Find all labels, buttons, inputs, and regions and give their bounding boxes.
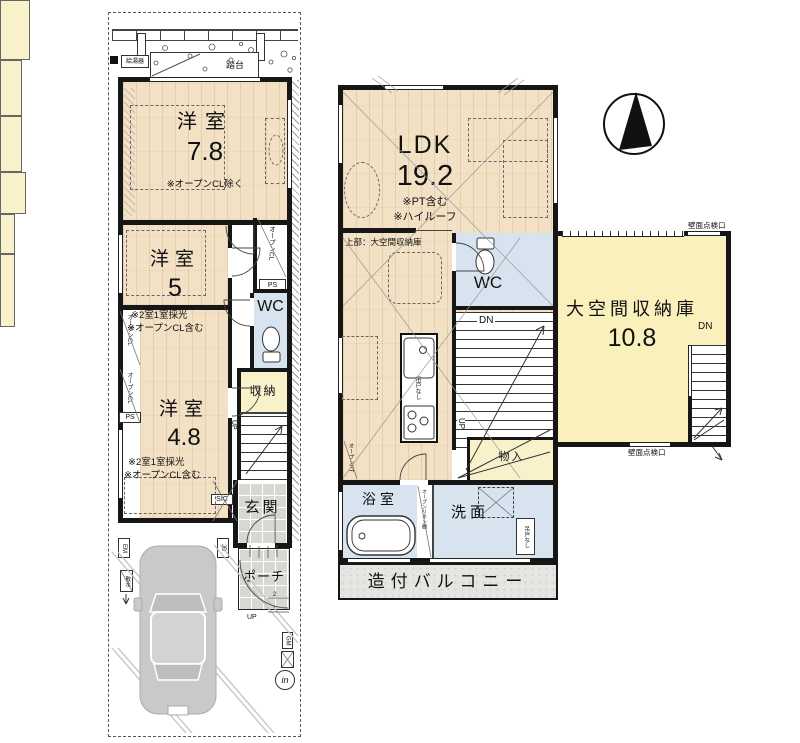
north-arrow-icon (598, 86, 670, 158)
wall (118, 518, 237, 523)
wc-room-2f (456, 233, 553, 306)
em-label: EM (121, 544, 127, 553)
room-78-note: ※オープンCL除く (140, 180, 270, 190)
ldk-area: 19.2 (370, 162, 480, 191)
room-48-note2: ※オープンCL含む (124, 471, 201, 481)
porch-step-1: 1 (273, 606, 277, 613)
window (118, 430, 123, 498)
in-label: in (281, 676, 288, 685)
porch-step-2: 2 (273, 592, 277, 599)
partition (416, 230, 452, 231)
jb-box: JB (217, 538, 229, 558)
staircase-2f (456, 312, 553, 452)
ps-label: PS (268, 282, 277, 289)
entrance-label: 玄関 (238, 500, 287, 515)
gm-label: GM (285, 636, 291, 646)
staircase-loft (692, 345, 726, 442)
room-78-area: 7.8 (158, 138, 252, 164)
dn-label-2f: DN (477, 316, 495, 326)
linen-shelf (0, 254, 15, 327)
in-marker: in (275, 670, 295, 690)
open-pantry-label: オープンPT (347, 443, 353, 472)
up-label-1f: UP (230, 420, 237, 430)
door-gap (228, 248, 232, 278)
wall (253, 218, 257, 290)
sic-label: SIC (216, 496, 228, 503)
room-48-name: 洋室 (142, 400, 226, 419)
wall (467, 437, 553, 440)
furniture-outline (388, 252, 442, 304)
cabinet-note: 吊戸なし (523, 526, 529, 548)
floorplan-canvas: 給湯器 踏台 PS オープンCL WC 収納 UP オープンCL オープンCL … (0, 0, 800, 743)
utility-square (110, 56, 118, 64)
step-platform-label: 踏台 (226, 61, 244, 70)
open-closet-label: オープンCL (267, 226, 274, 260)
loft-name: 大空間収納庫 (562, 300, 702, 318)
open-closet (0, 0, 30, 60)
porch-label: ポーチ (238, 570, 290, 583)
ps-label: PS (125, 414, 134, 421)
wc-label-1f: WC (255, 299, 286, 315)
door-gap (452, 243, 456, 271)
room-48-note1: ※2室1室採光 (128, 458, 185, 468)
window (338, 338, 343, 393)
wall (456, 306, 553, 310)
wc-label-2f: WC (468, 274, 508, 291)
bathroom-label: 浴室 (345, 492, 415, 506)
open-closet (0, 116, 22, 172)
room-48-area: 4.8 (142, 426, 226, 450)
linen-shelf-label: オープンリネン棚 (421, 489, 426, 529)
room-78-name: 洋室 (158, 112, 252, 132)
inspection-hatch (630, 442, 670, 447)
furniture-outline (265, 118, 285, 184)
step-platform: 踏台 (150, 52, 259, 78)
loft-area: 10.8 (572, 326, 692, 351)
wall (338, 228, 416, 233)
jb-label: JB (220, 544, 226, 551)
furniture-outline (342, 336, 378, 400)
storage-label-1f: 収納 (240, 385, 287, 397)
stair-slit (688, 345, 692, 397)
open-closet-label: オープンCL (126, 372, 132, 404)
window (338, 492, 343, 550)
inspection-label-top: 壁面点検口 (688, 222, 726, 230)
wash-cabinet: 吊戸なし (516, 518, 535, 555)
open-closet (0, 60, 22, 116)
room-5-note1: ※2室1室採光 (131, 311, 188, 321)
balcony-label: 造付バルコニー (345, 573, 551, 590)
gm-meter: GM (282, 632, 293, 649)
sprinkler-box: 散水 (120, 570, 133, 592)
room-5-note2: ※オープンCL含む (127, 324, 204, 334)
dn-label-loft: DN (698, 322, 712, 332)
inspection-label-bottom: 壁面点検口 (628, 449, 666, 457)
ldk-note1: ※PT含む (370, 197, 480, 208)
room-5-name: 洋室 (133, 250, 217, 269)
storage-2f-label: 物入 (470, 452, 553, 463)
upper-loft-note: 上部：大空間収納庫 (345, 238, 422, 247)
inspection-hatch (688, 231, 720, 236)
washer-outline (478, 487, 514, 518)
partition (432, 485, 434, 558)
closet-hatch (124, 88, 135, 216)
up-label-porch: UP (247, 614, 257, 621)
open-pantry (0, 214, 15, 254)
up-label-2f: UP (457, 418, 465, 429)
water-heater: 給湯器 (121, 55, 149, 68)
loft-top-window (562, 231, 684, 237)
window (118, 235, 123, 293)
em-meter: EM (118, 538, 130, 558)
staircase-1f (241, 416, 287, 480)
window (338, 105, 343, 163)
window (553, 118, 558, 203)
window (385, 85, 443, 90)
room-5-area: 5 (133, 276, 217, 301)
door-gap (250, 298, 254, 326)
shoes-in-closet (0, 172, 26, 214)
partition (240, 412, 287, 414)
furniture-outline (503, 140, 548, 218)
pipe-space: PS (119, 412, 141, 423)
side-hatch (292, 80, 299, 542)
water-heater-label: 給湯器 (126, 59, 144, 65)
door-gap (228, 388, 232, 418)
kitchen-note: 吊戸なし (414, 376, 420, 400)
ldk-note2: ※ハイルーフ (370, 212, 480, 223)
meter-box (281, 651, 294, 668)
sprinkler-label: 散水 (124, 576, 130, 587)
window (287, 100, 292, 188)
window (150, 77, 260, 82)
furniture-outline (124, 477, 216, 514)
ldk-name: LDK (375, 133, 475, 158)
